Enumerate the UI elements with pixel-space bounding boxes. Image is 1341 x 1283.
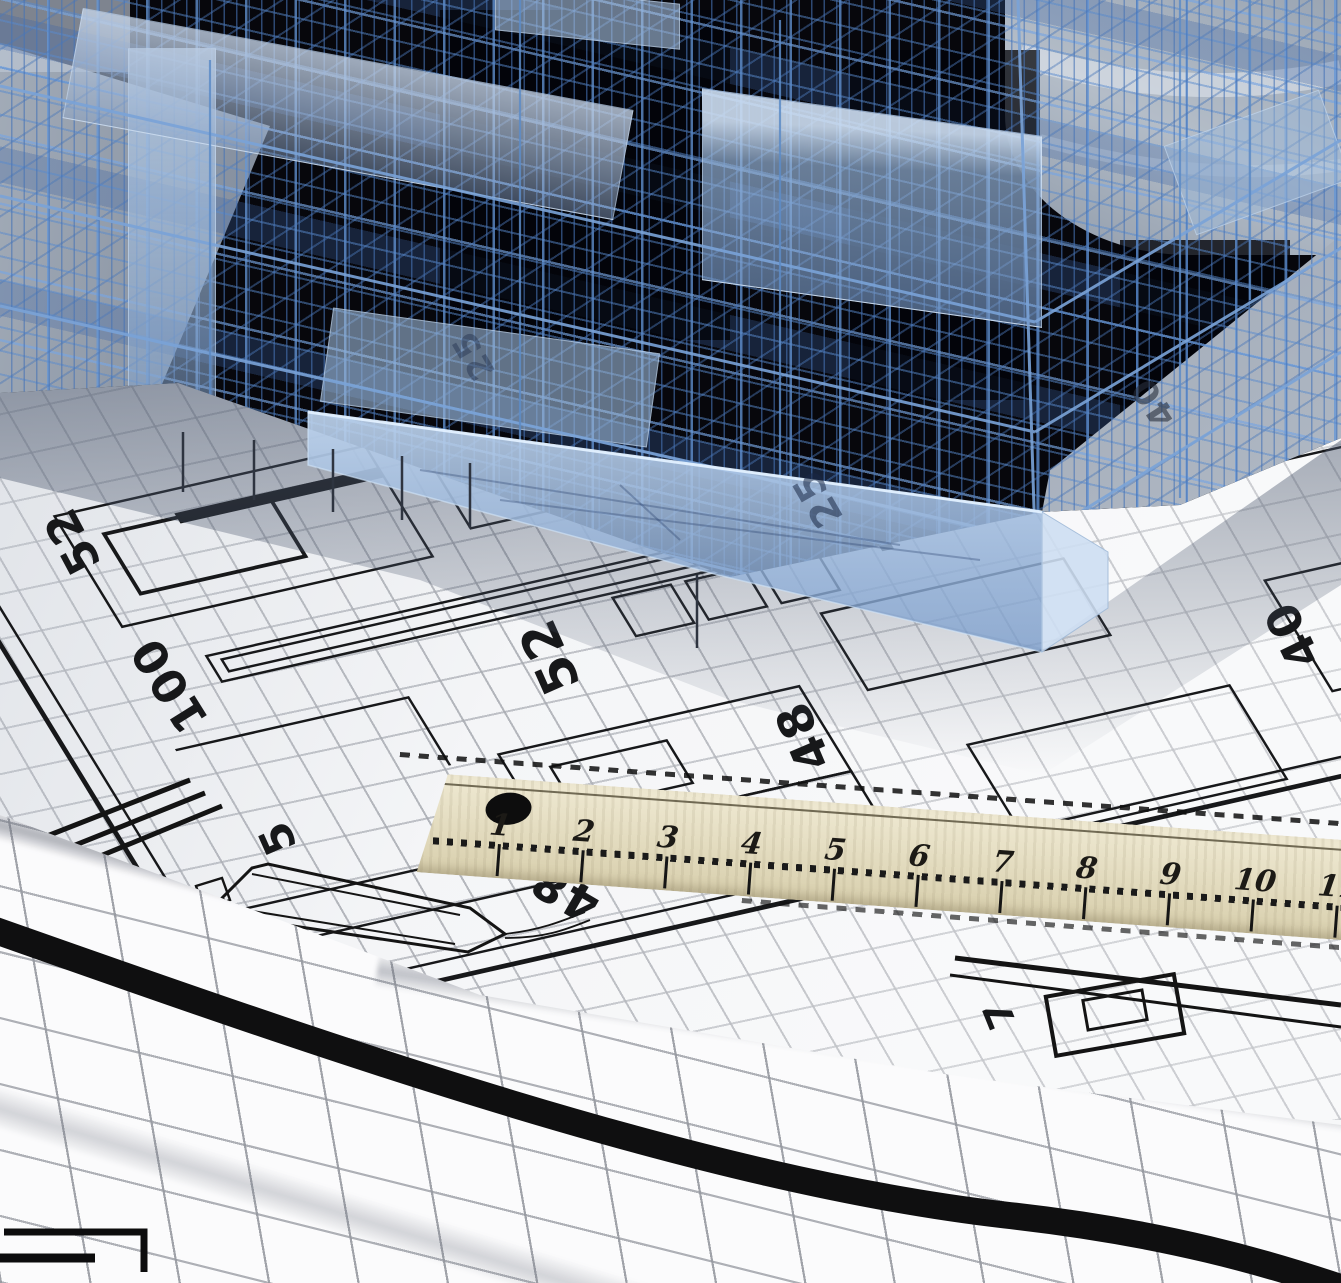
ruler-number: 8 [1064, 850, 1109, 888]
ruler-number: 2 [562, 813, 607, 851]
ruler-number: 11 [1316, 868, 1341, 906]
ruler-number: 4 [729, 825, 774, 863]
ruler-number: 1 [478, 807, 523, 845]
ruler-number: 7 [980, 844, 1025, 882]
ruler-number: 9 [1148, 856, 1193, 894]
ruler-number: 3 [645, 819, 690, 857]
ruler-number: 5 [813, 831, 858, 869]
ruler-number: 6 [897, 838, 942, 876]
blueprint-scene: 52 100 52 48 40 5 48 7 [0, 0, 1341, 1283]
support-pins [0, 0, 1341, 800]
ruler-number: 10 [1232, 862, 1277, 900]
